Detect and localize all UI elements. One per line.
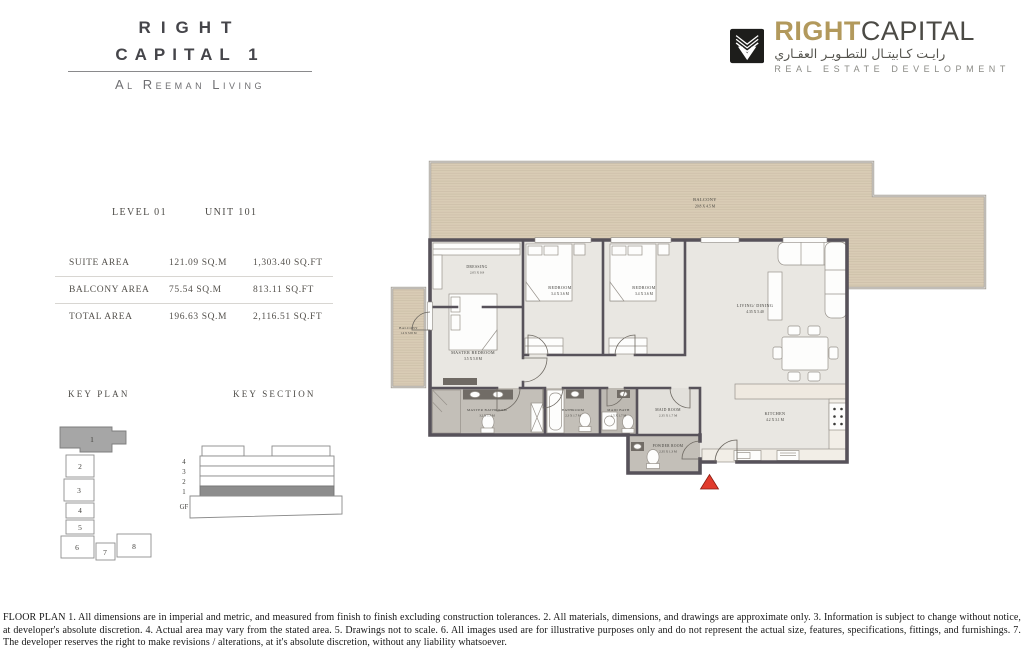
room-dims: 4.2 X 3.1 M [766, 418, 785, 422]
key-section-roof-left [202, 446, 244, 456]
entrance-marker-icon [701, 475, 719, 490]
room-label: MASTER BEDROOM [451, 350, 495, 355]
key-plan-unit-number: 6 [75, 543, 79, 552]
key-section-floor-1 [200, 486, 334, 496]
chair [788, 326, 800, 335]
bench [443, 378, 477, 385]
chair [808, 326, 820, 335]
room-dims: 1.4 X 3.65 M [400, 331, 416, 335]
room-label: MAID BATH [607, 408, 630, 412]
toilet [580, 413, 591, 427]
toilet [647, 450, 659, 465]
closet [433, 255, 442, 289]
room-dims: 2.05 X 0.9 [470, 271, 485, 275]
room-label: LIVING/ DINING [737, 303, 773, 308]
nightstand [574, 244, 585, 255]
area-sqft: 813.11 SQ.FT [253, 285, 333, 295]
key-section-floor-label: 4 [182, 459, 186, 466]
key-section-floor-label: 1 [182, 489, 185, 496]
room-dims: 1.5 X 1.7 M [611, 414, 627, 418]
room-label: BATHROOM [562, 408, 585, 412]
brand-subtitle: Al Reeman Living [60, 77, 320, 92]
brochure-page: RIGHT CAPITAL 1 Al Reeman Living RIGHTCA… [0, 0, 1024, 654]
key-plan-unit-number: 7 [103, 548, 107, 557]
room-dims: 3.4 X 3.6 M [635, 292, 654, 296]
room-dims: 4.35 X 5.40 [746, 310, 764, 314]
area-row-label: SUITE AREA [55, 258, 169, 268]
room-label: BEDROOM [548, 285, 571, 290]
key-section-floor-label: 2 [182, 479, 186, 486]
key-plan-diagram: 1 2 3 4 5 6 7 8 [52, 421, 152, 561]
area-sqft: 1,303.40 SQ.FT [253, 258, 333, 268]
area-sqm: 196.63 SQ.M [169, 312, 253, 322]
room-dims: 3.5 X 5.8 M [464, 357, 483, 361]
key-section-ground [190, 496, 342, 518]
table-row: BALCONY AREA 75.54 SQ.M 813.11 SQ.FT [55, 276, 333, 303]
logo-word-right: RIGHT [774, 16, 861, 46]
key-plan-unit-number: 1 [90, 435, 94, 444]
room-dims: 2.3 X 1.7 M [565, 414, 581, 418]
area-table: SUITE AREA 121.09 SQ.M 1,303.40 SQ.FT BA… [55, 250, 333, 330]
brand-line1: RIGHT [60, 18, 320, 38]
key-section-diagram: 4 3 2 1 GF [172, 438, 347, 528]
room-label: POWDER ROOM [653, 444, 684, 448]
key-plan-unit-number: 5 [78, 523, 82, 532]
floor-plan: BALCONY 20.8 X 4.5 M BALCONY 1.4 X 3.65 … [385, 152, 995, 497]
table-row: TOTAL AREA 196.63 SQ.M 2,116.51 SQ.FT [55, 303, 333, 330]
logo-arabic: رايـت كـابيتـال للتطـويـر العقـاري [774, 46, 1010, 61]
company-logo: RIGHTCAPITAL رايـت كـابيتـال للتطـويـر ا… [730, 18, 1010, 74]
key-plan-unit-number: 2 [78, 462, 82, 471]
nightstand [658, 244, 669, 255]
room-label: MAID ROOM [655, 408, 681, 412]
kitchen-counter [735, 384, 847, 399]
level-label: LEVEL 01 [112, 207, 167, 218]
room-label: DRESSING [466, 265, 487, 269]
room-dims: 2.35 X 1.3 M [659, 450, 677, 454]
powder-room-floor [628, 435, 700, 473]
disclaimer-text: FLOOR PLAN 1. All dimensions are in impe… [3, 612, 1021, 650]
table-row: SUITE AREA 121.09 SQ.M 1,303.40 SQ.FT [55, 250, 333, 276]
brand-block: RIGHT CAPITAL 1 Al Reeman Living [60, 18, 320, 92]
room-label: MASTER BATHROOM [467, 408, 508, 412]
stove [829, 403, 846, 430]
kitchen-counter [702, 449, 847, 462]
room-label: BALCONY [693, 197, 717, 202]
room-label: KITCHEN [765, 411, 786, 416]
dining-table [782, 337, 828, 370]
key-section-floor-4 [200, 456, 334, 466]
key-section-floor-2 [200, 476, 334, 486]
area-sqm: 75.54 SQ.M [169, 285, 253, 295]
room-label: BEDROOM [632, 285, 655, 290]
key-section-floor-3 [200, 466, 334, 476]
logo-tagline: REAL ESTATE DEVELOPMENT [774, 64, 1010, 74]
unit-label: UNIT 101 [205, 207, 257, 218]
brand-underline [68, 71, 312, 72]
logo-wordmark: RIGHTCAPITAL [774, 18, 1010, 45]
balcony-left-area [392, 288, 425, 387]
room-dims: 3.2 X 1.7 M [479, 414, 495, 418]
logo-word-capital: CAPITAL [861, 16, 975, 46]
room-dims: 20.8 X 4.5 M [695, 205, 716, 209]
key-plan-unit-number: 8 [132, 542, 136, 551]
logo-mark-icon [730, 18, 764, 74]
key-plan-unit-number: 4 [78, 506, 82, 515]
key-section-floor-label: 3 [182, 469, 186, 476]
room-dims: 2.35 X 1.7 M [659, 414, 677, 418]
key-plan-title: KEY PLAN [68, 389, 130, 399]
key-plan-unit-number: 3 [77, 486, 81, 495]
sofa [825, 242, 847, 318]
console-table [768, 272, 782, 320]
chair [808, 372, 820, 381]
logo-text: RIGHTCAPITAL رايـت كـابيتـال للتطـويـر ا… [774, 18, 1010, 74]
area-row-label: BALCONY AREA [55, 285, 169, 295]
area-row-label: TOTAL AREA [55, 312, 169, 322]
brand-line2: CAPITAL 1 [60, 45, 320, 65]
room-label: BALCONY [399, 326, 418, 330]
area-sqm: 121.09 SQ.M [169, 258, 253, 268]
chair [829, 347, 838, 359]
key-section-title: KEY SECTION [233, 389, 316, 399]
chair [773, 347, 782, 359]
chair [788, 372, 800, 381]
key-section-floor-label: GF [180, 504, 189, 511]
key-section-roof-right [272, 446, 330, 456]
room-dims: 3.4 X 3.6 M [551, 292, 570, 296]
area-sqft: 2,116.51 SQ.FT [253, 312, 333, 322]
